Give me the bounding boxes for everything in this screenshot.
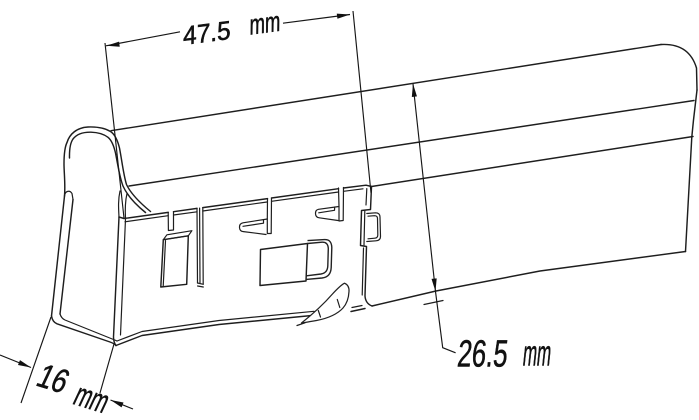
svg-text:mm: mm (249, 5, 280, 40)
svg-text:mm: mm (521, 333, 553, 374)
svg-text:47.5: 47.5 (183, 15, 231, 51)
svg-text:26.5: 26.5 (456, 334, 510, 376)
